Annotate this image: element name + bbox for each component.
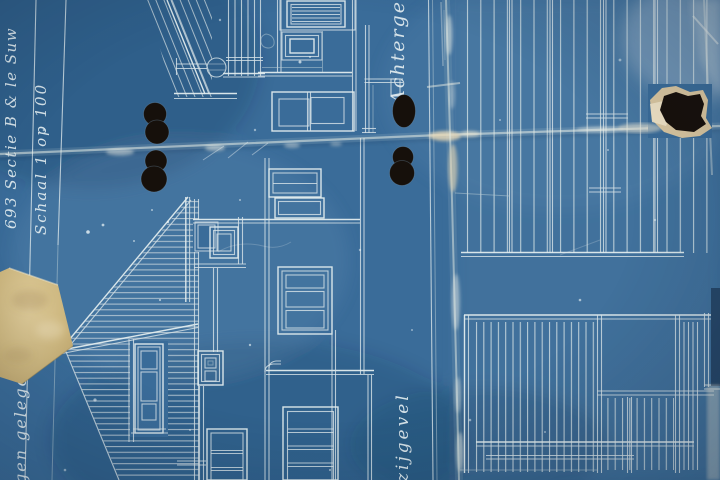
blueprint-photo: 693 Sectie B & le Suw Schaal 1 op 100 ge…: [0, 0, 720, 480]
punch-hole: [390, 147, 415, 186]
side-facade-label: zijgevel: [393, 392, 413, 480]
paper-edge-shadow: [711, 288, 720, 386]
cadastre-note: 693 Sectie B & le Suw: [2, 27, 20, 229]
blueprint-drawing: 693 Sectie B & le Suw Schaal 1 op 100 ge…: [0, 0, 720, 480]
punch-hole: [393, 95, 416, 128]
scale-note: Schaal 1 op 100: [32, 83, 50, 235]
baluster-hatching: [471, 322, 597, 472]
rear-facade-label: Achtergevel: [387, 0, 409, 106]
